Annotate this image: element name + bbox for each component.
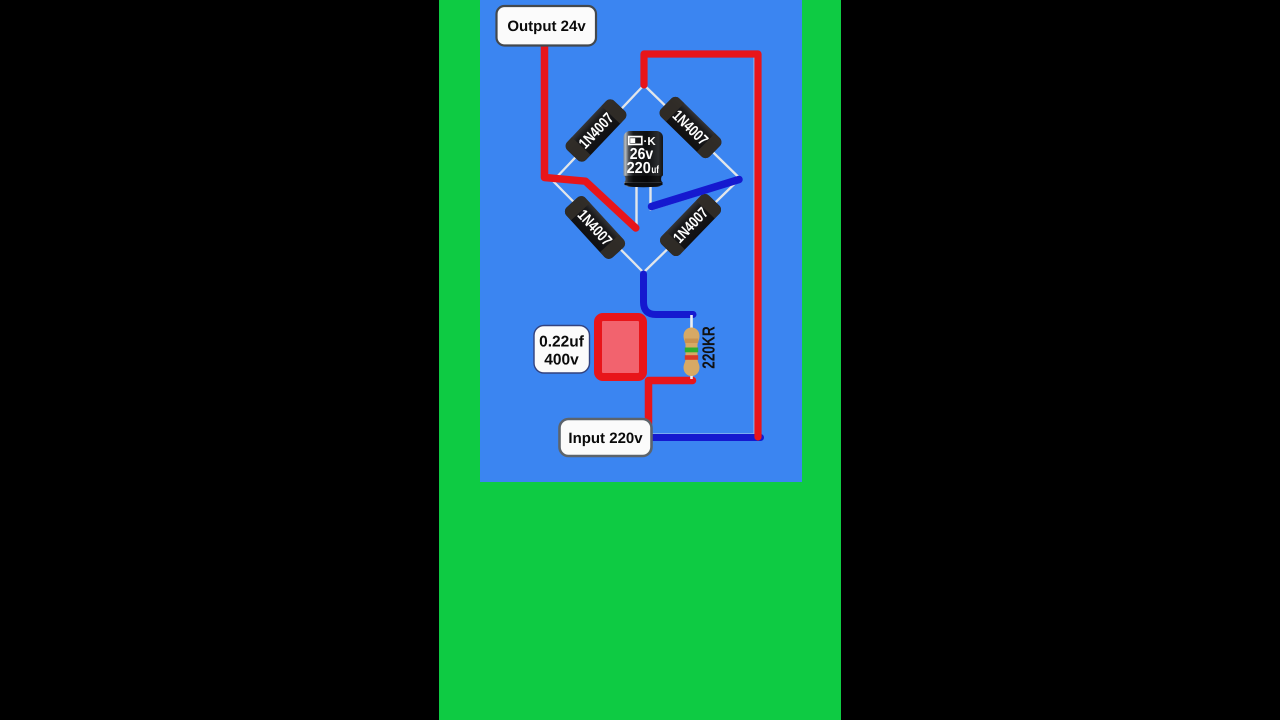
- svg-text:Input 220v: Input 220v: [568, 430, 643, 447]
- svg-text:uf: uf: [651, 164, 659, 176]
- svg-text:Output 24v: Output 24v: [507, 18, 586, 35]
- svg-text:400v: 400v: [544, 352, 579, 369]
- svg-text:220: 220: [627, 160, 651, 177]
- svg-text:220KR: 220KR: [699, 326, 719, 369]
- svg-text:0.22uf: 0.22uf: [539, 334, 585, 351]
